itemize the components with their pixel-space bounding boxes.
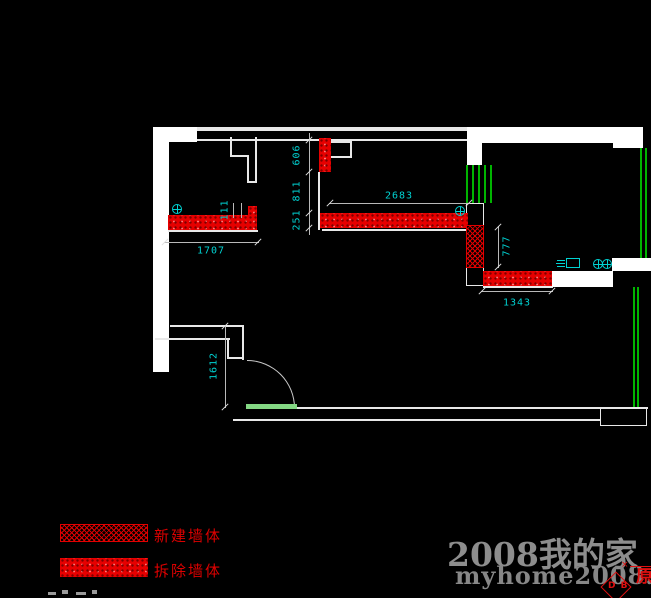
dim-line-777 bbox=[498, 226, 499, 268]
window-line bbox=[490, 165, 492, 203]
demolish-wall-left bbox=[168, 215, 257, 230]
dim-tick bbox=[548, 287, 555, 294]
door-swing-arc bbox=[247, 360, 295, 408]
demolish-wall-riser bbox=[319, 138, 331, 172]
door-jamb bbox=[227, 357, 244, 359]
demolish-wall-lower bbox=[483, 271, 552, 286]
dim-tick bbox=[494, 263, 501, 270]
wall-under-demolish bbox=[483, 286, 553, 288]
dim-text-1612: 1612 bbox=[209, 352, 220, 380]
wall-bottom-right-box bbox=[600, 407, 647, 426]
dim-tick bbox=[221, 403, 228, 410]
cutoff-text bbox=[62, 590, 68, 594]
dim-line-1707 bbox=[164, 242, 259, 243]
column-line bbox=[247, 155, 249, 183]
dim-text-251: 251 bbox=[292, 209, 303, 230]
door-leaf bbox=[246, 404, 297, 409]
center-mark-icon bbox=[172, 204, 182, 214]
legend-label-new-wall: 新建墙体 bbox=[154, 525, 222, 546]
wall-top-right-step bbox=[613, 143, 643, 148]
junction-box-lower bbox=[466, 267, 484, 286]
entry-wall-line bbox=[170, 325, 243, 327]
window-line bbox=[472, 165, 474, 203]
dim-line-vertical-left bbox=[309, 133, 310, 235]
wall-left-exterior bbox=[153, 127, 169, 372]
stub-line bbox=[331, 156, 352, 158]
appliance-icon bbox=[557, 266, 565, 267]
appliance-icon bbox=[566, 258, 580, 268]
legend-swatch-new-wall bbox=[60, 524, 148, 542]
appliance-icon bbox=[557, 260, 565, 261]
junction-box-upper bbox=[466, 203, 484, 227]
dim-ext-111 bbox=[233, 203, 234, 218]
window-line-right-upper bbox=[645, 148, 647, 258]
wall-top-outer-line bbox=[197, 127, 467, 131]
wall-bottom-outer bbox=[246, 407, 648, 409]
wall-right-band-b bbox=[552, 271, 613, 287]
window-line-right-lower bbox=[633, 287, 635, 407]
dim-tick bbox=[254, 238, 261, 245]
window-line-right-lower bbox=[637, 287, 639, 407]
legend-swatch-demolish-wall bbox=[60, 558, 148, 577]
window-line bbox=[466, 165, 468, 203]
floorplan-canvas: 606 811 251 2683 111 1707 777 1343 1612 … bbox=[0, 0, 651, 598]
dim-text-1707: 1707 bbox=[197, 246, 225, 257]
legend-label-demolish-wall: 拆除墙体 bbox=[154, 560, 222, 581]
appliance-icon bbox=[556, 263, 565, 264]
dim-line-2683 bbox=[329, 203, 470, 204]
entry-wall-line bbox=[155, 338, 230, 340]
door-jamb bbox=[242, 325, 244, 360]
wall-right-band-a bbox=[612, 258, 651, 271]
dim-text-811: 811 bbox=[292, 180, 303, 201]
wall-under-demolish bbox=[322, 229, 468, 231]
dim-text-1343: 1343 bbox=[503, 298, 531, 309]
center-mark-icon bbox=[602, 259, 612, 269]
wall-bottom-inner bbox=[233, 419, 601, 421]
wall-pier bbox=[467, 128, 482, 165]
cutoff-text bbox=[92, 590, 97, 594]
window-line bbox=[478, 165, 480, 203]
dim-ext-111 bbox=[241, 203, 242, 218]
dim-text-2683: 2683 bbox=[385, 191, 413, 202]
center-mark-icon bbox=[455, 206, 465, 216]
dim-text-777: 777 bbox=[502, 235, 513, 256]
new-wall-segment bbox=[466, 225, 484, 268]
stub-line bbox=[331, 141, 352, 143]
window-line-right-upper bbox=[640, 148, 642, 258]
column-line bbox=[255, 137, 257, 183]
column-line bbox=[247, 181, 257, 183]
dim-line-1343 bbox=[481, 291, 553, 292]
dim-text-606: 606 bbox=[292, 144, 303, 165]
dim-text-111: 111 bbox=[220, 199, 231, 220]
dim-line-1612 bbox=[225, 325, 226, 408]
window-line bbox=[484, 165, 486, 203]
stamp-cross: × bbox=[621, 560, 629, 570]
column-line bbox=[230, 137, 232, 157]
cutoff-text bbox=[48, 592, 56, 595]
stamp-letters: D B bbox=[608, 581, 628, 591]
wall-top-right bbox=[467, 127, 643, 143]
wall-under-demolish bbox=[168, 230, 258, 232]
demolish-wall-left-notch bbox=[248, 206, 257, 216]
cutoff-text bbox=[76, 592, 86, 595]
stamp-character: 原 bbox=[636, 562, 651, 587]
demolish-wall-kitchen bbox=[320, 213, 468, 228]
